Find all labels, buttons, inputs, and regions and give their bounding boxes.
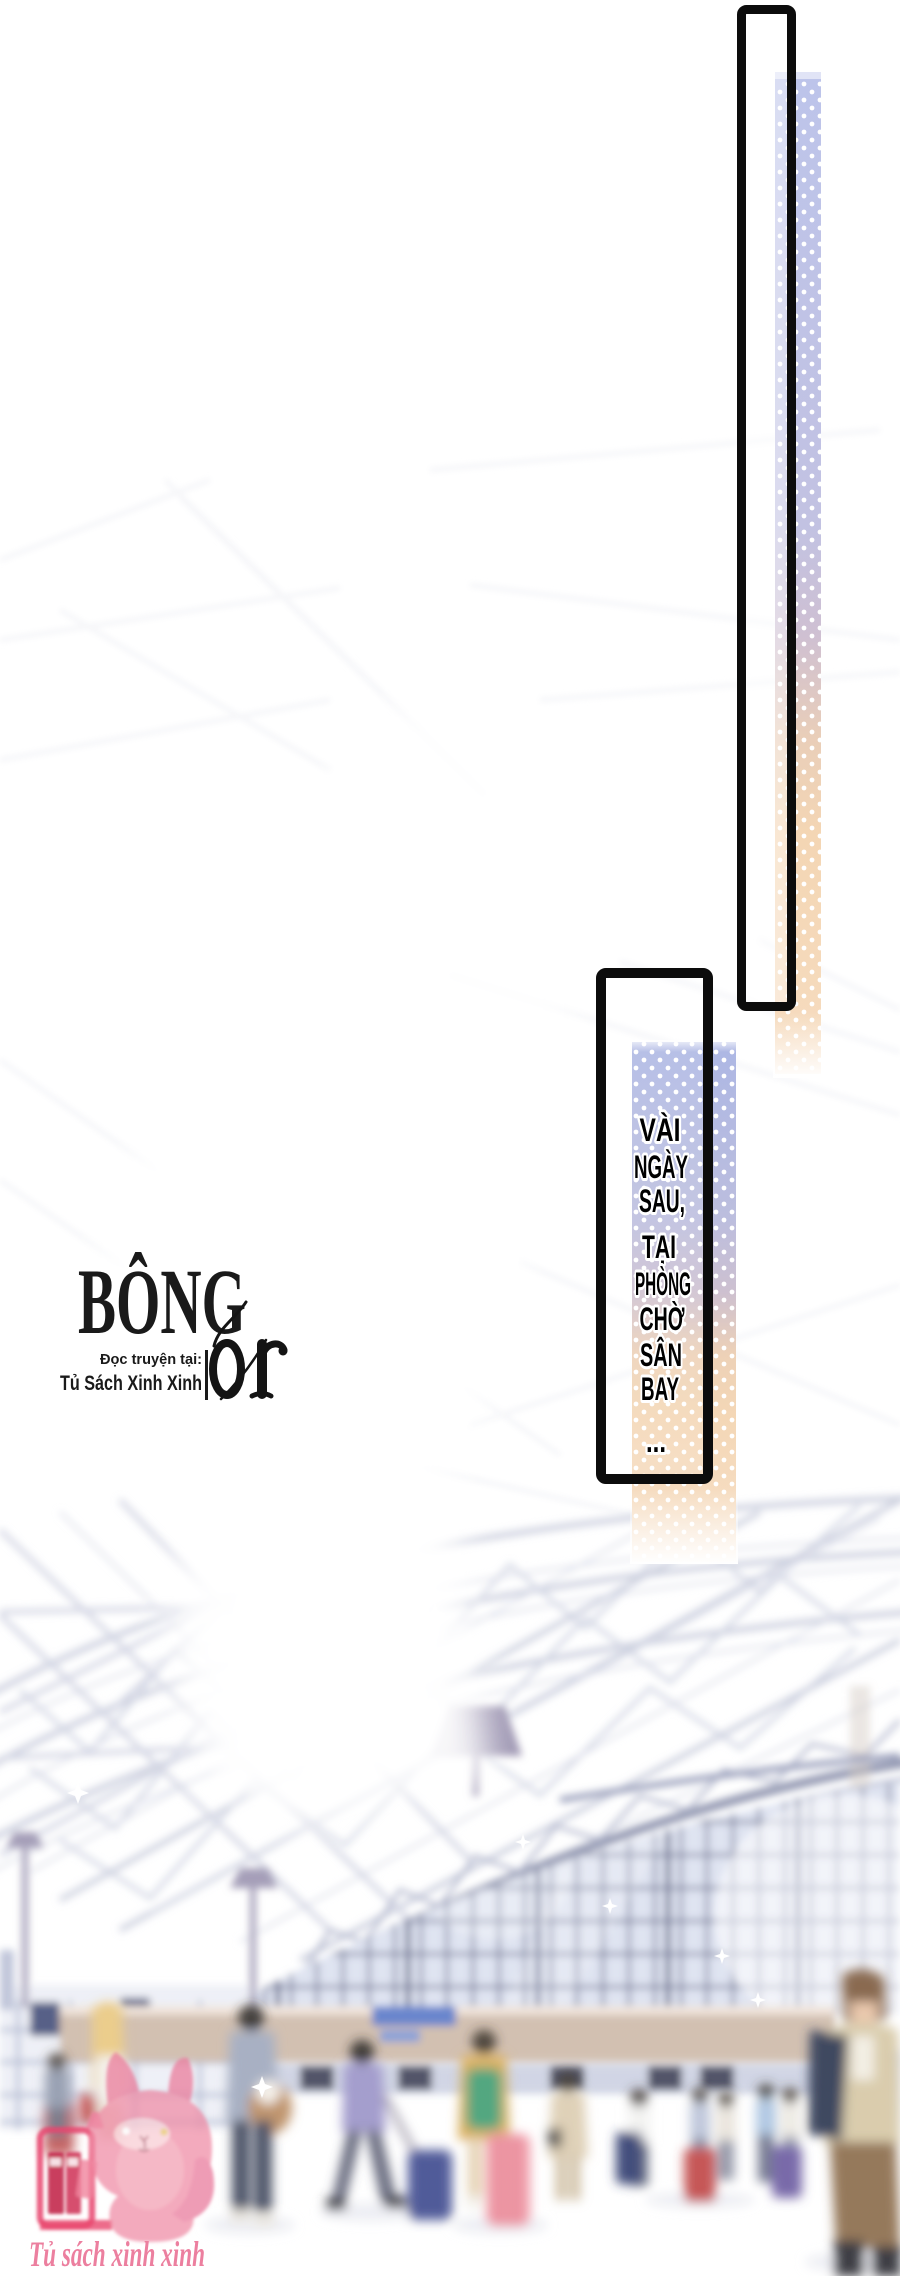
svg-text:NGÀY: NGÀY xyxy=(634,1149,688,1185)
svg-text:SÂN: SÂN xyxy=(640,1337,682,1373)
svg-text:CHỜ: CHỜ xyxy=(640,1301,685,1337)
svg-text:Đọc truyện tại:: Đọc truyện tại: xyxy=(100,1351,202,1368)
svg-text:TẠI: TẠI xyxy=(642,1229,676,1265)
svg-text:BAY: BAY xyxy=(641,1371,679,1407)
svg-text:PHÒNG: PHÒNG xyxy=(635,1266,691,1302)
svg-text:SAU,: SAU, xyxy=(639,1183,685,1219)
svg-text:Tủ sách xinh xinh: Tủ sách xinh xinh xyxy=(29,2234,205,2274)
svg-text:VÀI: VÀI xyxy=(640,1112,681,1148)
svg-text:Tủ Sách Xinh Xinh: Tủ Sách Xinh Xinh xyxy=(60,1372,202,1395)
svg-text:...: ... xyxy=(646,1423,666,1459)
svg-text:BÔNG: BÔNG xyxy=(78,1251,246,1354)
